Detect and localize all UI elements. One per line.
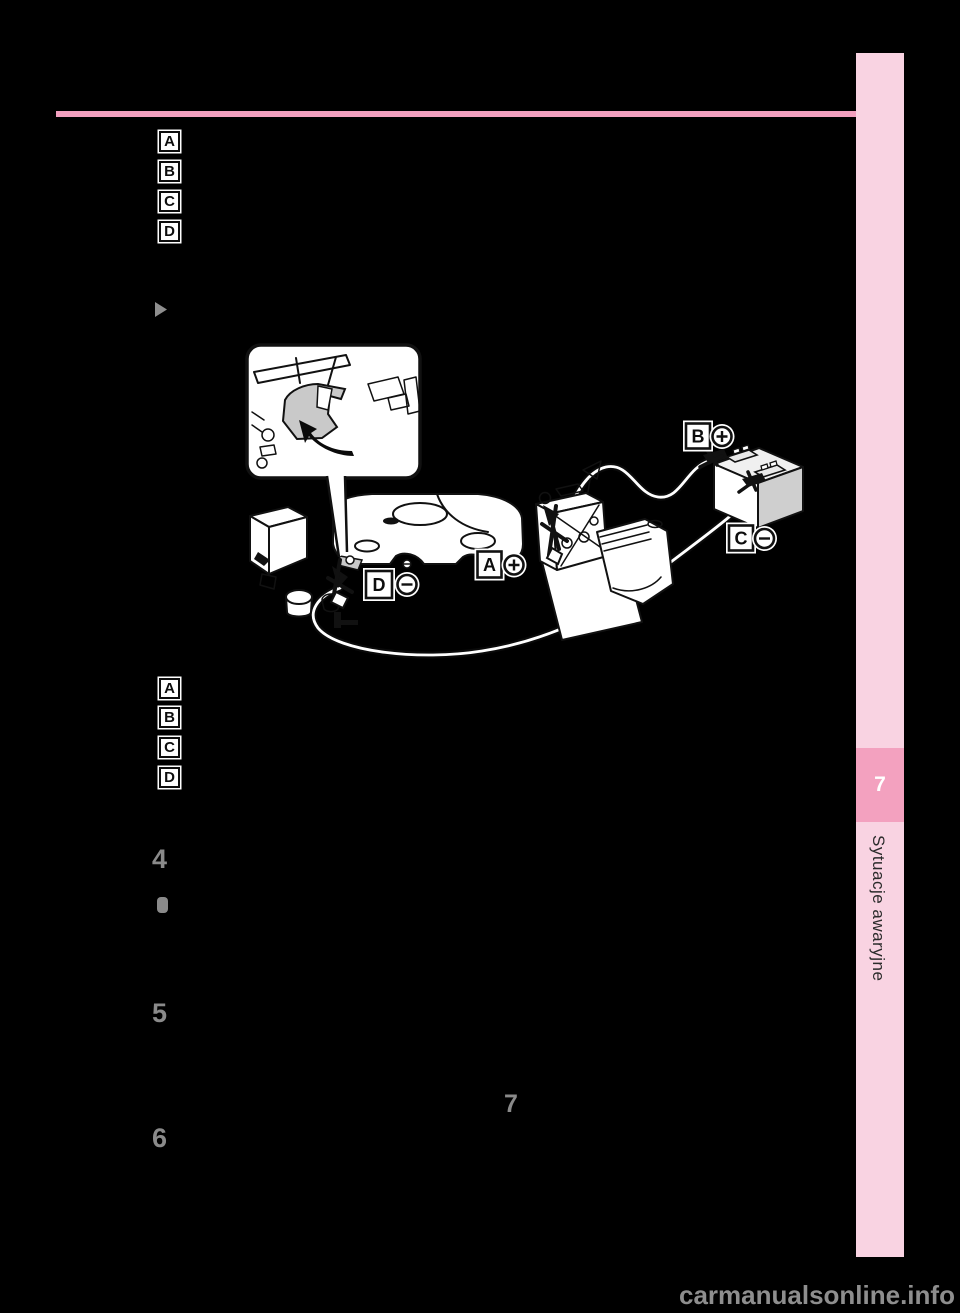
step-number-5: 5 [152, 1000, 167, 1027]
filler-cap [286, 590, 312, 617]
chapter-title-vertical: Sytuacje awaryjne [868, 835, 888, 1265]
chapter-divider-line [56, 111, 856, 117]
negative-clamp-engine [328, 556, 354, 608]
jump-start-diagram: A B C [150, 295, 860, 685]
legend-bottom-item-a: A [159, 678, 180, 699]
marker-d: D [363, 560, 420, 601]
legend-top-item-a: A [159, 131, 180, 152]
callout-detail-box [247, 345, 420, 478]
watermark-text: carmanualsonline.info [679, 1282, 955, 1308]
marker-c-letter: C [735, 529, 748, 549]
minus-symbol [395, 572, 420, 597]
legend-top-item-b: B [159, 161, 180, 182]
marker-a-letter: A [483, 555, 496, 575]
air-cleaner-box [250, 507, 307, 589]
minus-symbol [752, 526, 777, 551]
step-number-4: 4 [152, 846, 167, 873]
chapter-number-badge: 7 [856, 748, 904, 822]
legend-top-item-d: D [159, 221, 180, 242]
plus-symbol [502, 553, 527, 578]
legend-top-item-c: C [159, 191, 180, 212]
chapter-number: 7 [874, 773, 886, 797]
marker-b: B [683, 421, 735, 452]
callout-leader [327, 474, 347, 557]
marker-c: C [726, 523, 777, 554]
manual-page: 7 Sytuacje awaryjne A B C D [0, 0, 960, 1313]
plus-symbol [710, 424, 735, 449]
marker-d-letter: D [373, 575, 386, 595]
marker-b-letter: B [692, 427, 705, 447]
legend-bottom-item-b: B [159, 707, 180, 728]
inline-page-number: 7 [504, 1092, 518, 1117]
legend-bottom-item-c: C [159, 737, 180, 758]
partial-glyph-fragment [157, 897, 168, 913]
list-pointer-icon [155, 302, 167, 317]
step-number-6: 6 [152, 1125, 167, 1152]
legend-bottom-item-d: D [159, 767, 180, 788]
